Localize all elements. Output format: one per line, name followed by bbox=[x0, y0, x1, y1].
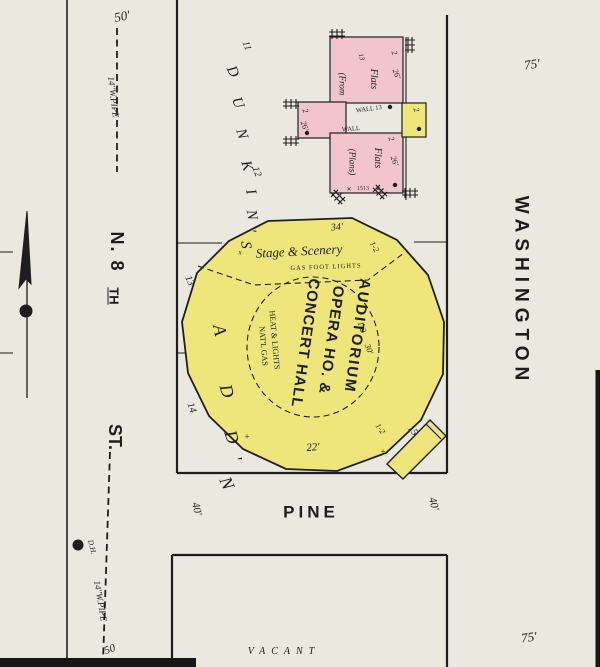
north-arrow-dot bbox=[20, 305, 32, 317]
mark-x-stage: x bbox=[238, 250, 241, 257]
scan-edge-bottom bbox=[0, 658, 196, 667]
dim-40ft-right: 40' bbox=[426, 496, 440, 512]
flats-plans-label: (Plans) bbox=[348, 149, 357, 176]
sanborn-map: 50'14''W.PIPEN. 8THST.PINEWASHINGTON75'7… bbox=[0, 0, 600, 667]
flats-house-number: 1513 bbox=[357, 186, 369, 192]
fire-symbol-dot bbox=[417, 127, 421, 131]
auditorium-22ft: 22' bbox=[306, 442, 320, 454]
fire-symbol-dot bbox=[393, 183, 397, 187]
flats-upper-label: Flats bbox=[368, 69, 378, 90]
flats-lower-label: Flats bbox=[372, 148, 382, 169]
dim-75ft-top: 75' bbox=[523, 56, 540, 71]
street-n8th-part2: TH bbox=[108, 287, 121, 304]
scan-edge-right bbox=[596, 370, 600, 667]
fire-symbol-dot bbox=[305, 131, 309, 135]
street-pine: PINE bbox=[283, 504, 339, 521]
street-n8th-part1: N. 8 bbox=[108, 231, 126, 272]
hydrant-dot bbox=[73, 540, 84, 551]
auditorium-34ft: 34' bbox=[331, 222, 344, 233]
street-washington: WASHINGTON bbox=[512, 196, 531, 387]
flats-from-label: (From bbox=[338, 73, 347, 96]
mark-x-left: ✕ bbox=[346, 187, 351, 193]
mark-plus-right: + bbox=[380, 448, 385, 457]
vacant-label: VACANT bbox=[248, 647, 320, 657]
dim-40ft-left: 40' bbox=[189, 501, 203, 517]
dim-75ft-bottom: 75' bbox=[520, 629, 537, 644]
street-n8th-st: ST. bbox=[106, 424, 124, 450]
dim-50ft-top: 50' bbox=[113, 8, 131, 24]
fire-symbol-dot bbox=[388, 105, 392, 109]
mark-x-right: ✕ bbox=[375, 187, 380, 193]
mark-plus-left: + bbox=[244, 433, 249, 442]
